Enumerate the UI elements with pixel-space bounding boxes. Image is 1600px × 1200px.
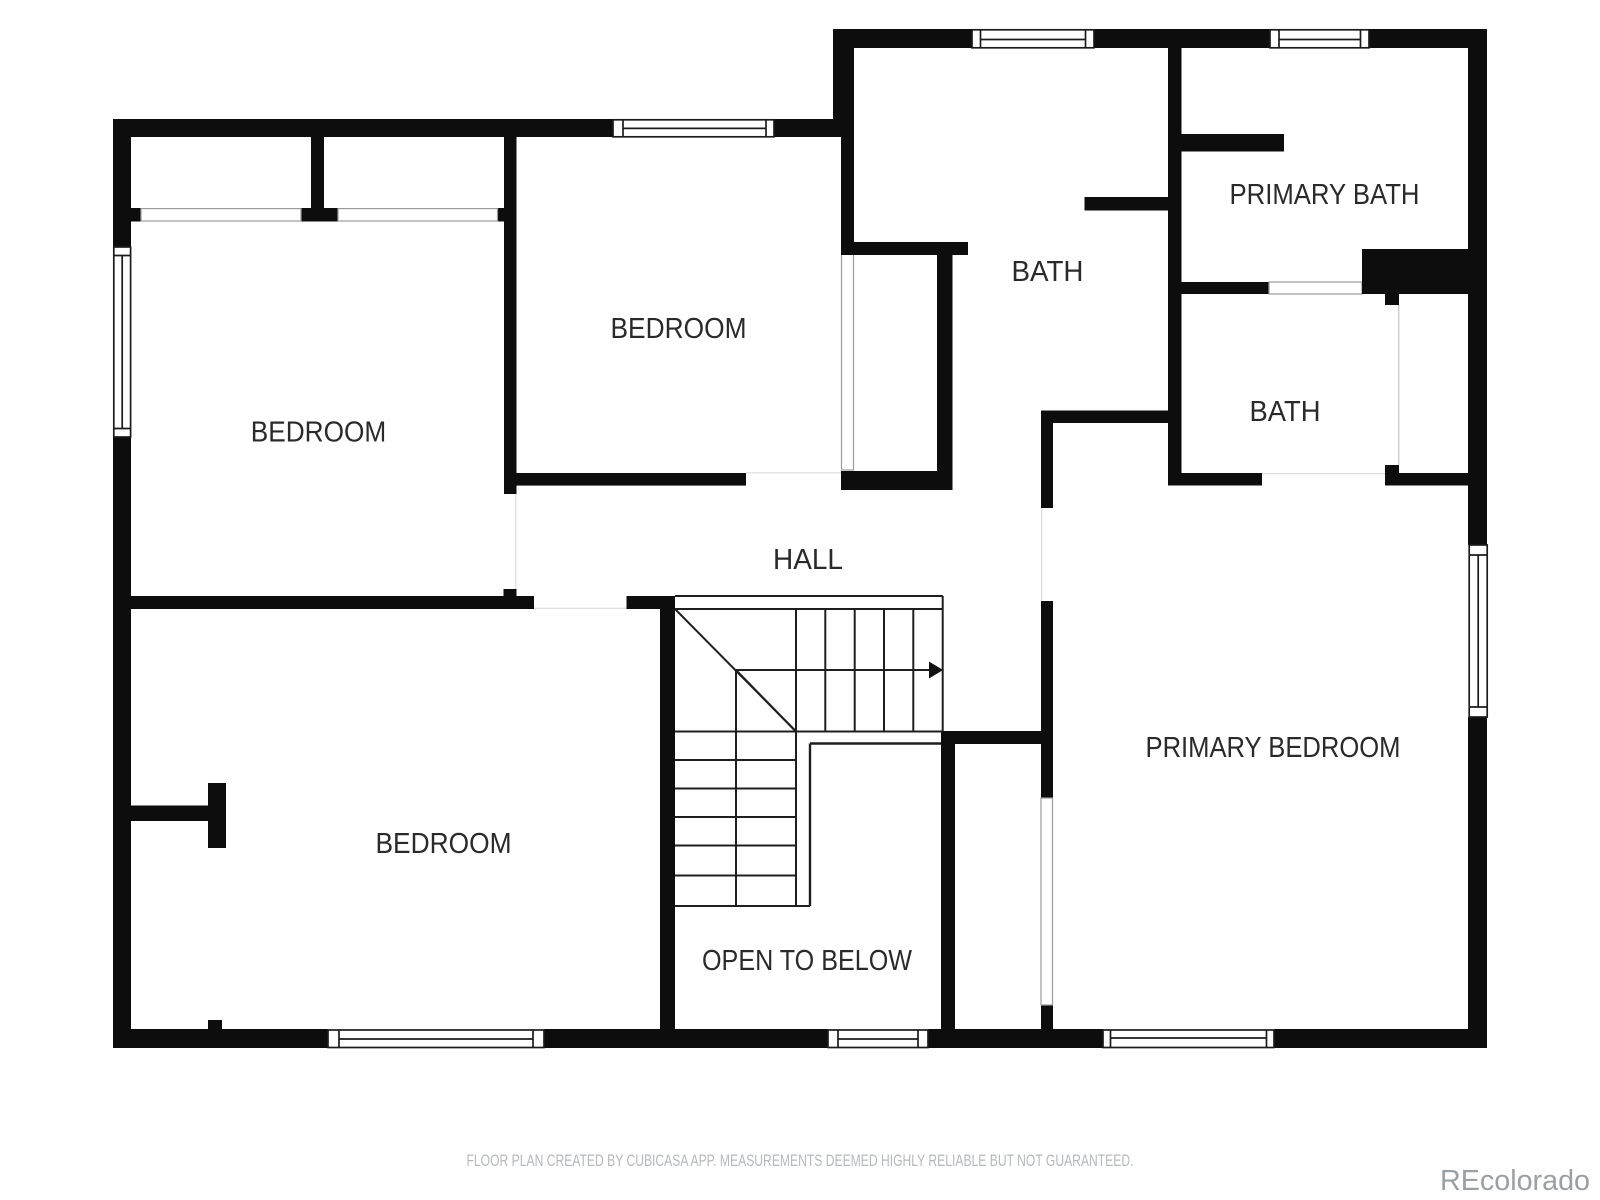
- svg-text:PRIMARY BEDROOM: PRIMARY BEDROOM: [1146, 732, 1401, 764]
- svg-text:BEDROOM: BEDROOM: [376, 828, 512, 860]
- svg-text:OPEN TO BELOW: OPEN TO BELOW: [702, 945, 913, 977]
- svg-text:HALL: HALL: [773, 544, 843, 576]
- svg-text:FLOOR PLAN CREATED BY CUBICASA: FLOOR PLAN CREATED BY CUBICASA APP. MEAS…: [467, 1151, 1134, 1170]
- svg-text:PRIMARY BATH: PRIMARY BATH: [1230, 179, 1420, 211]
- svg-text:BEDROOM: BEDROOM: [611, 313, 747, 345]
- svg-text:BATH: BATH: [1012, 256, 1084, 288]
- svg-text:BEDROOM: BEDROOM: [251, 417, 387, 449]
- svg-text:REcolorado: REcolorado: [1440, 1165, 1590, 1197]
- svg-text:BATH: BATH: [1250, 396, 1321, 428]
